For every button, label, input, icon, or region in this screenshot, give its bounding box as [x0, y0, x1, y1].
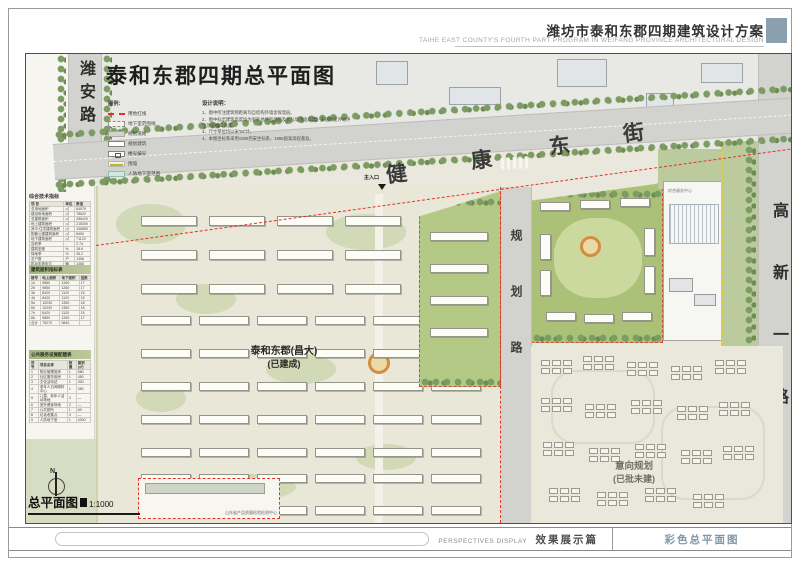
footer-rounded-box [55, 532, 429, 546]
planned-building-footprint [646, 444, 655, 450]
legend-item-label: 围墙 [128, 161, 137, 167]
phase4-parcel-east [531, 183, 663, 343]
header-rule [455, 46, 764, 47]
planned-building-cluster [541, 398, 575, 413]
planned-building-footprint [656, 488, 665, 494]
legend-item: 规划建筑 [108, 139, 194, 149]
test-center-label: 山东省产品质量检验检测中心 [225, 510, 277, 516]
planned-building-footprint [543, 442, 552, 448]
planned-building-footprint [656, 496, 665, 502]
planned-building-cluster [671, 366, 705, 381]
entrance-marker-icon [378, 184, 386, 190]
planned-building-cluster [693, 494, 727, 509]
building-footprint [373, 506, 423, 515]
building-footprint [257, 448, 307, 457]
planned-building-footprint [699, 406, 708, 412]
planned-building-cluster [543, 442, 577, 457]
building-footprint [644, 266, 655, 294]
planned-building-footprint [704, 502, 713, 508]
tree-row [420, 377, 500, 386]
planned-building-footprint [607, 404, 616, 410]
building-footprint [584, 314, 614, 323]
planned-building-footprint [605, 364, 614, 370]
planned-building-cluster [631, 400, 665, 415]
planned-building-footprint [649, 362, 658, 368]
planned-building-footprint [594, 356, 603, 362]
planned-building-footprint [719, 402, 728, 408]
building-footprint [277, 216, 333, 226]
planned-building-footprint [723, 454, 732, 460]
building-footprint [546, 312, 576, 321]
building-footprint [199, 448, 249, 457]
building-footprint [430, 264, 488, 273]
building-footprint [141, 415, 191, 424]
legend-item-label: 人防地下室范围 [128, 171, 160, 177]
test-center-block: 山东省产品质量检验检测中心 [138, 478, 280, 519]
building-footprint [257, 382, 307, 391]
planned-building-footprint [627, 370, 636, 376]
building-footprint [199, 415, 249, 424]
building-footprint [373, 382, 423, 391]
planned-building-cluster [635, 444, 669, 459]
building-footprint [315, 448, 365, 457]
section-title-en: PERSPECTIVES DISPLAY [438, 538, 527, 545]
planned-building-footprint [638, 370, 647, 376]
building-footprint [580, 200, 610, 209]
building-footprint [430, 232, 488, 241]
service-parcel: 综合服务中心 [663, 181, 723, 341]
section-title: PERSPECTIVES DISPLAY 效果展示篇 [438, 530, 612, 548]
building-footprint [257, 415, 307, 424]
notes-title: 设计说明： [202, 100, 354, 108]
planned-building-footprint [667, 496, 676, 502]
planned-building-footprint [704, 494, 713, 500]
planned-building-footprint [631, 408, 640, 414]
scale-name: 总平面图 [28, 496, 78, 510]
planned-building-footprint [726, 368, 735, 374]
building-footprint [315, 415, 365, 424]
planned-building-footprint [699, 414, 708, 420]
building-footprint [199, 382, 249, 391]
planned-building-footprint [734, 446, 743, 452]
planned-building-footprint [682, 366, 691, 372]
planned-building-footprint [667, 488, 676, 494]
planned-building-footprint [554, 450, 563, 456]
central-lawn [554, 218, 642, 298]
planned-building-footprint [554, 442, 563, 448]
service-parcel-label: 综合服务中心 [668, 188, 692, 194]
planned-building-footprint [541, 368, 550, 374]
planned-building-footprint [741, 410, 750, 416]
planned-building-footprint [649, 370, 658, 376]
planned-building-footprint [693, 494, 702, 500]
planned-building-footprint [563, 368, 572, 374]
planned-building-footprint [677, 414, 686, 420]
building-footprint [315, 474, 365, 483]
planned-building-footprint [642, 400, 651, 406]
planned-building-footprint [596, 404, 605, 410]
tree-row [532, 333, 662, 342]
planned-building-footprint [619, 500, 628, 506]
building-footprint [373, 474, 423, 483]
intent-area-label: 意向规划 (已批未建) [586, 458, 682, 485]
header-accent-square [766, 18, 787, 43]
planned-building-footprint [560, 496, 569, 502]
planned-building-footprint [608, 492, 617, 498]
building-footprint [345, 216, 401, 226]
planned-building-footprint [693, 502, 702, 508]
planned-building-cluster [677, 406, 711, 421]
building-footprint [431, 506, 481, 515]
building-footprint [540, 202, 570, 211]
planned-building-footprint [715, 502, 724, 508]
building-footprint [141, 216, 197, 226]
building-footprint [430, 296, 488, 305]
planned-building-footprint [607, 412, 616, 418]
planned-building-cluster [719, 402, 753, 417]
planned-building-cluster [681, 450, 715, 465]
building-footprint [373, 415, 423, 424]
planned-building-footprint [541, 360, 550, 366]
planned-building-footprint [585, 412, 594, 418]
planned-building-footprint [693, 366, 702, 372]
planned-building-footprint [596, 412, 605, 418]
scale-value: 1:1000 [89, 500, 113, 509]
planned-building-footprint [693, 374, 702, 380]
planned-building-footprint [565, 450, 574, 456]
legend-item-label: 规划道路 [128, 131, 146, 137]
planned-building-footprint [703, 458, 712, 464]
planned-building-cluster [715, 360, 749, 375]
plan-title: 泰和东郡四期总平面图 [106, 60, 336, 90]
planned-building-footprint [645, 496, 654, 502]
planned-building-cluster [723, 446, 757, 461]
legend-item: 人防地下室范围 [108, 169, 194, 179]
scale-label: 总平面图1:1000 [28, 492, 140, 515]
legend-item-label: 用地红线 [128, 111, 146, 117]
building-footprint [209, 284, 265, 294]
planned-building-footprint [726, 360, 735, 366]
legend-item-label: 规划建筑 [128, 141, 146, 147]
planned-building-footprint [723, 446, 732, 452]
legend-swatch-icon [108, 131, 125, 137]
site-plan-drawing: 综合技术指标 项 目单位数值总用地面积㎡84575建设用地面积㎡78620总建筑… [25, 53, 792, 524]
legend-swatch-icon [108, 141, 125, 147]
road-label-jiankang-char: 东 [547, 129, 571, 161]
notes-list: 1、图中所注建筑物距离均自结构外墙含保温层。2、图中标示建筑高度均为室外地坪至顶… [202, 110, 354, 142]
building-footprint [141, 284, 197, 294]
building-footprint [373, 349, 423, 358]
project-title-en: TAIHE EAST COUNTY'S FOURTH PART PROGRAM … [419, 37, 764, 44]
planned-building-footprint [638, 362, 647, 368]
built-estate-status: (已建成) [224, 357, 344, 370]
planned-building-footprint [571, 488, 580, 494]
planned-building-footprint [541, 398, 550, 404]
drawing-sheet: 潍坊市泰和东郡四期建筑设计方案 TAIHE EAST COUNTY'S FOUR… [0, 0, 800, 565]
building-footprint [209, 250, 265, 260]
building-footprint [199, 316, 249, 325]
legend-item: 楼号编号 [108, 149, 194, 159]
garden-plaza-circle [580, 236, 601, 257]
planned-building-footprint [703, 450, 712, 456]
planned-building-footprint [611, 448, 620, 454]
road-label-jiankang-char: 健 [384, 157, 408, 189]
planned-building-footprint [552, 398, 561, 404]
building-footprint [373, 316, 423, 325]
building-footprint [145, 483, 265, 494]
intent-label-line1: 意向规划 [586, 458, 682, 472]
planned-building-footprint [677, 406, 686, 412]
planned-building-footprint [730, 402, 739, 408]
legend-item: 地下室范围线 [108, 119, 194, 129]
building-footprint [141, 448, 191, 457]
planned-building-footprint [627, 362, 636, 368]
planned-building-footprint [563, 398, 572, 404]
legend-swatch-icon [108, 113, 125, 115]
planned-building-footprint [560, 488, 569, 494]
planned-building-footprint [688, 414, 697, 420]
planned-building-footprint [741, 402, 750, 408]
planned-building-footprint [583, 364, 592, 370]
building-footprint [431, 448, 481, 457]
road-label-jiankang-char: 街 [621, 116, 645, 148]
planned-building-footprint [635, 444, 644, 450]
legend-item-label: 楼号编号 [128, 151, 146, 157]
building-footprint [141, 382, 191, 391]
planned-building-cluster [645, 488, 679, 503]
planned-building-footprint [571, 496, 580, 502]
planned-building-footprint [594, 364, 603, 370]
planned-building-footprint [671, 366, 680, 372]
planned-building-footprint [737, 368, 746, 374]
building-footprint [669, 278, 693, 292]
building-footprint [373, 448, 423, 457]
planned-building-cluster [549, 488, 583, 503]
planned-building-footprint [552, 406, 561, 412]
scale-square-icon [80, 498, 87, 507]
legend-item: 规划道路 [108, 129, 194, 139]
planned-building-footprint [597, 492, 606, 498]
planned-building-cluster [597, 492, 631, 507]
building-footprint [620, 198, 650, 207]
building-footprint [540, 270, 551, 296]
legend-title: 图例： [108, 100, 194, 107]
planned-building-footprint [688, 406, 697, 412]
intent-label-line2: (已批未建) [586, 472, 682, 485]
building-footprint [141, 316, 191, 325]
building-footprint [540, 234, 551, 260]
planned-building-footprint [671, 374, 680, 380]
road-label-guihua: 规划路 [508, 229, 525, 397]
building-footprint [622, 312, 652, 321]
building-footprint [431, 415, 481, 424]
legend-item-label: 地下室范围线 [128, 121, 156, 127]
section-title-cn: 效果展示篇 [536, 534, 599, 546]
building-footprint [141, 349, 191, 358]
planned-building-footprint [608, 500, 617, 506]
planned-building-footprint [541, 406, 550, 412]
planned-building-footprint [715, 360, 724, 366]
building-footprint [345, 284, 401, 294]
built-estate-name: 泰和东郡(昌大) [224, 342, 344, 357]
planned-building-footprint [619, 492, 628, 498]
planned-building-footprint [645, 488, 654, 494]
sheet-name: 彩色总平面图 [613, 532, 791, 547]
building-footprint [141, 250, 197, 260]
building-footprint [277, 250, 333, 260]
building-footprint [431, 474, 481, 483]
planned-building-footprint [682, 374, 691, 380]
planned-building-footprint [543, 450, 552, 456]
planned-building-footprint [715, 494, 724, 500]
site-boundary-red-line [500, 187, 501, 523]
planned-building-footprint [589, 448, 598, 454]
planned-building-footprint [745, 454, 754, 460]
planned-building-footprint [734, 454, 743, 460]
legend-swatch-icon [108, 161, 125, 167]
planned-intent-area: 意向规划 (已批未建) [531, 346, 783, 523]
planned-building-footprint [681, 458, 690, 464]
planned-building-footprint [565, 442, 574, 448]
planned-building-footprint [715, 368, 724, 374]
planned-building-footprint [585, 404, 594, 410]
building-footprint [345, 250, 401, 260]
planned-building-footprint [549, 488, 558, 494]
planned-building-footprint [563, 406, 572, 412]
legend-swatch-icon [108, 151, 125, 157]
planned-building-footprint [719, 410, 728, 416]
legend-item: 用地红线 [108, 109, 194, 119]
legend-swatch-icon [108, 121, 125, 127]
planned-building-footprint [657, 444, 666, 450]
main-entrance-label: 主入口 [364, 174, 379, 181]
planned-building-footprint [692, 458, 701, 464]
road-label-jiankang-char: 康 [469, 143, 493, 175]
planned-building-cluster [585, 404, 619, 419]
building-footprint [694, 294, 716, 306]
planned-building-footprint [597, 500, 606, 506]
built-estate-label: 泰和东郡(昌大) (已建成) [224, 342, 344, 370]
legend-item: 围墙 [108, 159, 194, 169]
parking-hatch [669, 204, 719, 244]
legend-items: 用地红线地下室范围线规划道路规划建筑楼号编号围墙人防地下室范围 [108, 109, 194, 179]
planned-building-footprint [737, 360, 746, 366]
phase4-parcel-west [419, 191, 501, 387]
building-footprint [257, 316, 307, 325]
building-footprint [315, 316, 365, 325]
building-footprint [644, 228, 655, 256]
design-notes: 设计说明： 1、图中所注建筑物距离均自结构外墙含保温层。2、图中标示建筑高度均为… [202, 100, 354, 142]
intent-buildings [531, 346, 783, 523]
legend-swatch-icon [108, 171, 125, 177]
planned-building-footprint [549, 496, 558, 502]
planned-building-footprint [730, 410, 739, 416]
planned-building-footprint [653, 400, 662, 406]
planned-building-footprint [745, 446, 754, 452]
planned-building-footprint [563, 360, 572, 366]
planned-building-footprint [552, 360, 561, 366]
planned-building-footprint [642, 408, 651, 414]
planned-building-footprint [681, 450, 690, 456]
planned-building-footprint [631, 400, 640, 406]
planned-building-cluster [627, 362, 661, 377]
legend: 图例： 用地红线地下室范围线规划道路规划建筑楼号编号围墙人防地下室范围 [108, 100, 194, 179]
planned-building-footprint [605, 356, 614, 362]
planned-building-cluster [541, 360, 575, 375]
building-footprint [277, 284, 333, 294]
planned-building-footprint [600, 448, 609, 454]
note-line: 2、图中标示建筑高度均为室外地坪至顶层及女儿墙顶面高度，多层为室外地坪至顶层檐口… [202, 117, 354, 130]
building-footprint [315, 506, 365, 515]
planned-building-footprint [653, 408, 662, 414]
note-line: 4、本图坐标系采用1980西安坐标系，1985国家高程基准。 [202, 136, 354, 142]
planned-building-footprint [552, 368, 561, 374]
planned-building-footprint [692, 450, 701, 456]
crosswalk [501, 156, 532, 170]
footer-band: PERSPECTIVES DISPLAY 效果展示篇 彩色总平面图 [9, 527, 791, 551]
planned-building-cluster [583, 356, 617, 371]
planned-building-footprint [583, 356, 592, 362]
building-footprint [430, 328, 488, 337]
building-footprint [315, 382, 365, 391]
